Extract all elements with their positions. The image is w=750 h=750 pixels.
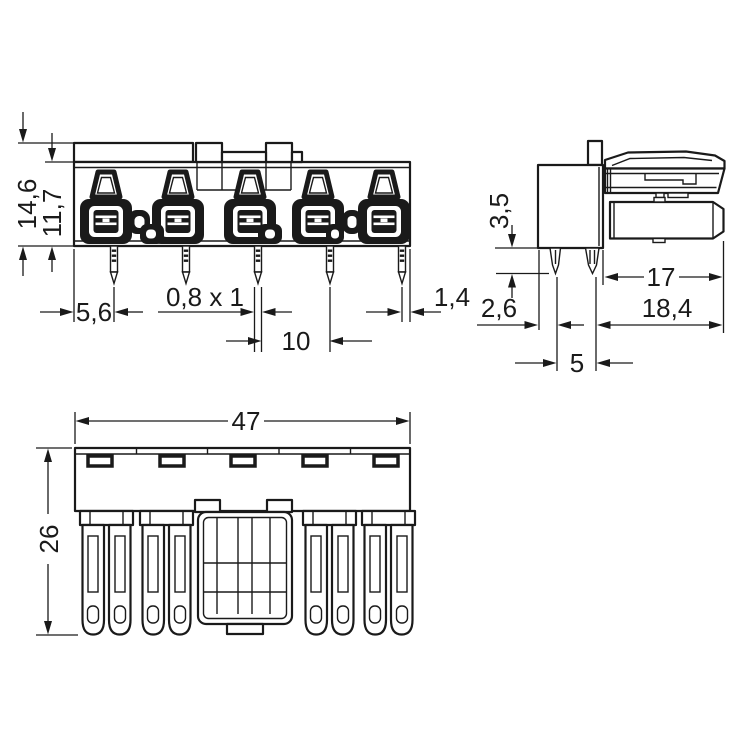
bottom-housing [75,448,410,511]
dim-pin-row-pitch: 5 [515,348,633,378]
side-pin-2 [586,248,600,274]
side-housing-body [538,165,603,248]
dim-pin-row-pitch-label: 5 [570,348,584,378]
dim-overall-depth-bottom-label: 26 [34,525,64,554]
leg-group-2 [140,511,193,635]
front-latch-tab-right [266,143,292,162]
slot-2 [160,456,184,466]
dim-last-pin-to-edge: 1,4 [366,282,470,316]
dim-overall-width: 47 [76,406,410,436]
latch-block [198,512,292,624]
technical-drawing-page: 14,6 11,7 5,6 0,8 x 1 [0,0,750,750]
latch-tab-right [267,500,292,512]
front-top-cover-plate [74,143,193,162]
pin-4 [327,246,334,284]
dim-edge-to-pin-row-label: 2,6 [481,293,517,323]
bottom-view: 47 26 [34,406,415,635]
pin-1 [111,246,118,284]
front-latch-stub [292,152,302,162]
slot-3 [231,456,255,466]
slot-5 [374,456,398,466]
pin-5 [399,246,406,284]
pin-2 [183,246,190,284]
pin-3 [255,246,262,284]
dim-plug-section-length-label: 17 [647,262,676,292]
dim-pin-cross-section-label: 0,8 x 1 [166,282,244,312]
connector-dimension-drawing: 14,6 11,7 5,6 0,8 x 1 [0,0,750,750]
dim-pin-length: 3,5 [484,193,516,298]
dim-pin-cross-section: 0,8 x 1 [158,282,292,316]
dim-housing-height-label: 11,7 [37,189,67,238]
dim-last-pin-to-edge-label: 1,4 [434,282,470,312]
side-housing [538,141,603,248]
dim-pin-pitch-label: 10 [282,326,311,356]
leg-group-3 [303,511,356,635]
side-latch-arm [605,152,725,198]
front-pins [111,246,406,284]
front-latch-bar [222,152,266,162]
side-pins [550,248,599,274]
bottom-center-latch-block [195,500,292,634]
dim-pin-length-label: 3,5 [484,193,514,229]
dim-plug-section-length: 17 [605,262,723,292]
slot-1 [88,456,112,466]
side-plug-section [610,198,724,243]
latch-bottom-tab [227,624,263,634]
dim-overall-depth-bottom: 26 [34,449,64,635]
dim-housing-height: 11,7 [37,133,67,272]
dim-pin-pitch: 10 [226,326,372,356]
dim-edge-to-pin-row: 2,6 [477,293,584,329]
dim-edge-to-first-pin: 5,6 [40,297,143,327]
front-latch-tab-left [196,143,222,162]
slot-4 [303,456,327,466]
dim-overall-depth: 18,4 [597,293,723,329]
front-view: 14,6 11,7 5,6 0,8 x 1 [12,112,470,356]
leg-group-1 [80,511,133,635]
latch-tab-left [195,500,220,512]
dim-overall-width-label: 47 [232,406,261,436]
dim-edge-to-first-pin-label: 5,6 [76,297,112,327]
side-top-tab [588,141,602,165]
dim-overall-depth-label: 18,4 [642,293,693,323]
side-view: 3,5 2,6 5 17 [477,141,725,378]
leg-group-4 [362,511,415,635]
